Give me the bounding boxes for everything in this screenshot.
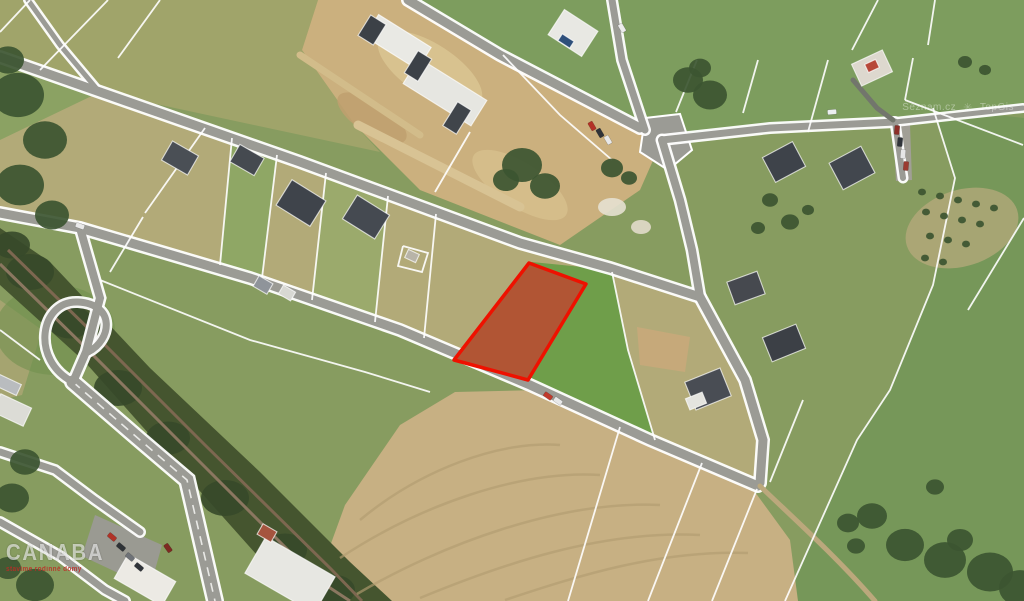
tree <box>762 193 778 207</box>
tree <box>944 237 952 244</box>
tree <box>751 222 765 234</box>
tree <box>958 56 972 68</box>
tree <box>802 205 814 215</box>
car <box>897 137 903 146</box>
tree <box>939 259 947 266</box>
tree <box>976 221 984 228</box>
tree <box>621 171 637 185</box>
aerial-map-canvas <box>0 0 1024 601</box>
car <box>827 109 836 115</box>
tree <box>530 173 560 199</box>
car <box>894 125 900 134</box>
tree <box>886 529 924 561</box>
car <box>903 161 909 170</box>
tree <box>921 255 929 262</box>
tree <box>16 569 54 601</box>
sand-pile <box>631 220 651 234</box>
tree <box>10 449 40 475</box>
tree <box>837 514 859 533</box>
tree <box>689 59 711 78</box>
tree <box>958 217 966 224</box>
brand-watermark: CANABA stavíme rodinné domy <box>6 541 118 573</box>
tree <box>693 81 727 110</box>
tree <box>954 197 962 204</box>
tree <box>493 169 519 191</box>
tree <box>857 503 887 529</box>
tree <box>979 65 991 75</box>
tree <box>940 213 948 220</box>
tree <box>926 479 944 494</box>
tree <box>23 121 67 158</box>
tree <box>918 189 926 196</box>
tree <box>922 209 930 216</box>
brand-tagline: stavíme rodinné domy <box>6 566 109 573</box>
tree <box>926 233 934 240</box>
tree <box>947 529 973 551</box>
tree <box>601 159 623 178</box>
brand-logo-text: CANABA <box>6 541 104 564</box>
tree <box>972 201 980 208</box>
sand-pile <box>598 198 626 216</box>
tree <box>781 214 799 229</box>
tree <box>936 193 944 200</box>
aerial-map[interactable]: Seznam.cz ✳ TopGis CANABA stavíme rodinn… <box>0 0 1024 601</box>
tree <box>962 241 970 248</box>
tree <box>990 205 998 212</box>
tree <box>35 201 69 230</box>
credit-separator-icon: ✳ <box>963 101 973 114</box>
imagery-credit-topgis: TopGis <box>980 102 1014 113</box>
tree <box>847 538 865 553</box>
car <box>900 149 906 158</box>
imagery-credit-seznam: Seznam.cz <box>902 102 956 113</box>
imagery-credits: Seznam.cz ✳ TopGis <box>902 101 1014 114</box>
